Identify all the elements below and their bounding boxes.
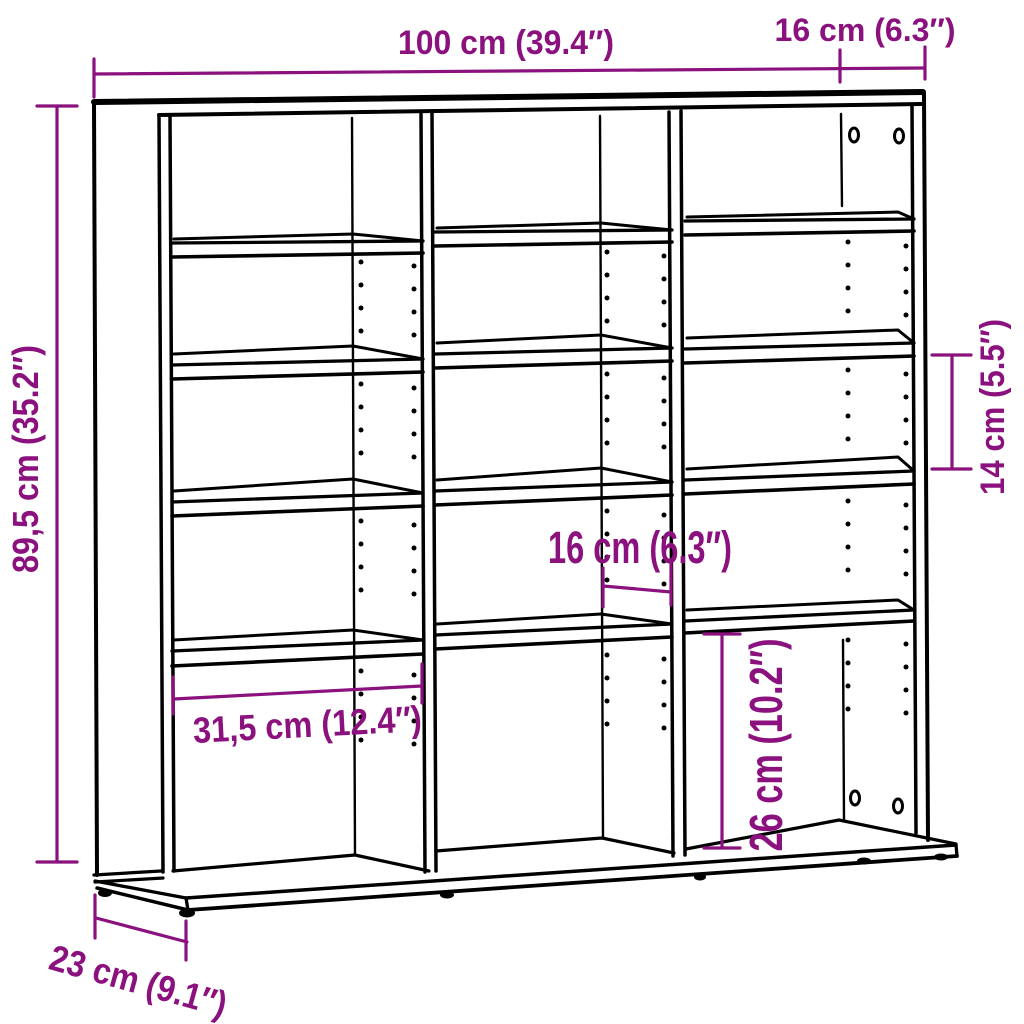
svg-text:14 cm (5.5″): 14 cm (5.5″) [974,319,1012,495]
svg-text:26 cm (10.2″): 26 cm (10.2″) [740,639,792,852]
svg-text:100 cm (39.4″): 100 cm (39.4″) [398,24,614,62]
svg-text:16 cm (6.3″): 16 cm (6.3″) [548,522,732,573]
svg-text:16 cm (6.3″): 16 cm (6.3″) [775,12,956,48]
svg-text:89,5 cm (35.2″): 89,5 cm (35.2″) [5,345,46,573]
